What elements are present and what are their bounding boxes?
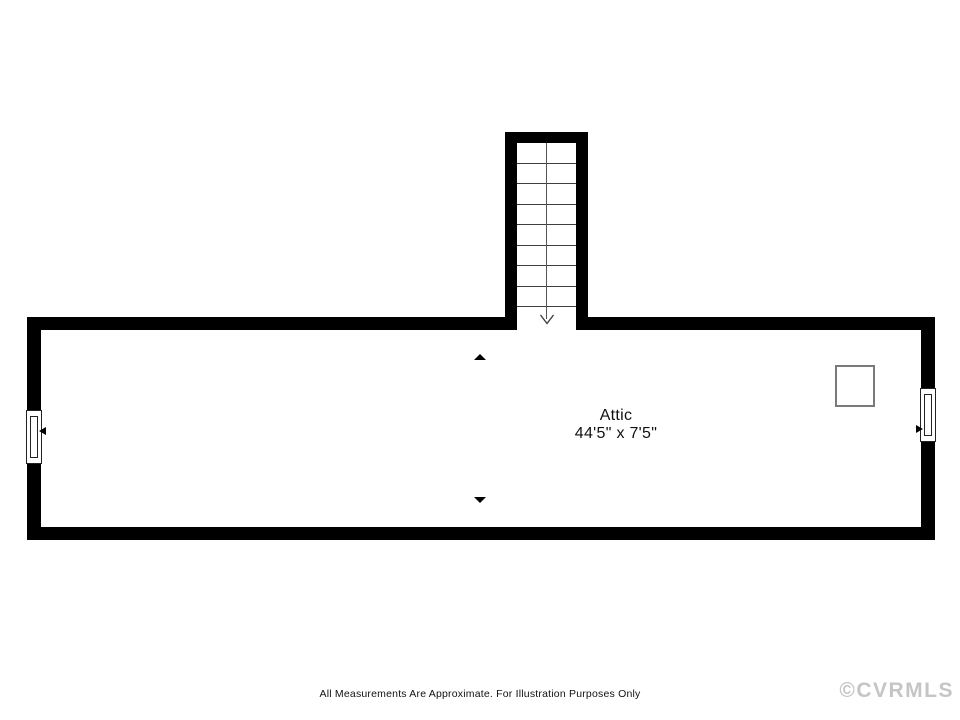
room-label: Attic 44'5" x 7'5" [516, 407, 716, 443]
room-right-wall-upper-segment [921, 317, 935, 388]
watermark-text: ©CVRMLS [839, 679, 954, 703]
room-left-wall-upper-segment [27, 317, 41, 410]
stair-direction-line [546, 143, 547, 319]
right-wall-window [920, 388, 936, 442]
room-right-wall-lower-segment [921, 442, 935, 540]
staircase [517, 143, 576, 330]
window-glass [924, 394, 932, 436]
room-name: Attic [516, 407, 716, 425]
room-dimensions: 44'5" x 7'5" [516, 425, 716, 443]
left-window-marker-icon [39, 427, 46, 435]
stair-shaft-right-wall [576, 132, 588, 317]
stair-down-arrow-icon [539, 314, 555, 325]
chimney-box [835, 365, 875, 407]
window-glass [30, 416, 38, 458]
room-left-wall-lower-segment [27, 464, 41, 540]
room-top-wall-right-segment [576, 317, 935, 330]
left-wall-window [26, 410, 42, 464]
section-marker-up-icon [474, 354, 486, 360]
disclaimer-text: All Measurements Are Approximate. For Il… [0, 688, 960, 700]
room-top-wall-left-segment [27, 317, 517, 330]
room-bottom-wall [27, 527, 935, 540]
section-marker-down-icon [474, 497, 486, 503]
stair-shaft-left-wall [505, 132, 517, 317]
right-window-marker-icon [916, 425, 923, 433]
